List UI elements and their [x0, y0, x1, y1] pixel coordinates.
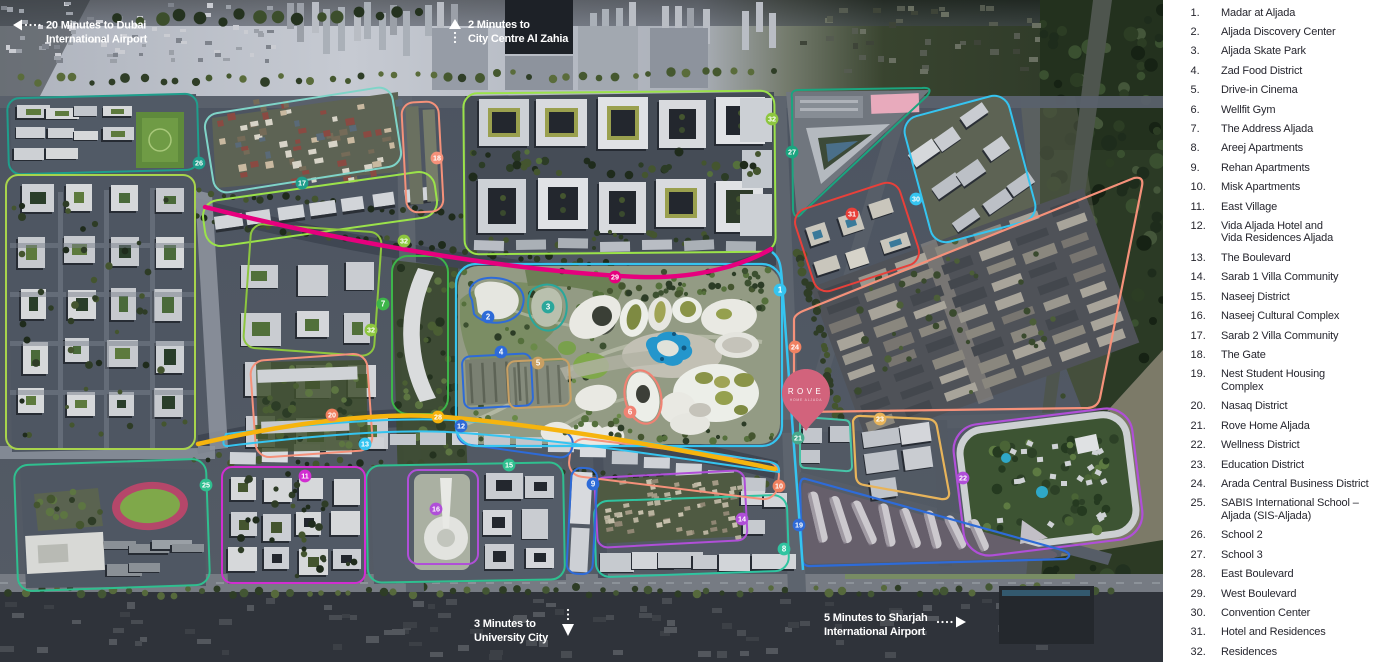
svg-text:3 Minutes to: 3 Minutes to — [474, 618, 536, 630]
svg-text:29: 29 — [611, 273, 619, 282]
svg-text:32: 32 — [367, 326, 375, 335]
svg-text:10: 10 — [775, 482, 783, 491]
svg-text:16: 16 — [432, 505, 440, 514]
svg-text:17: 17 — [298, 179, 306, 188]
svg-text:14: 14 — [738, 515, 746, 524]
svg-text:12: 12 — [457, 422, 465, 431]
svg-text:2 Minutes to: 2 Minutes to — [468, 19, 530, 31]
svg-text:19: 19 — [795, 521, 803, 530]
svg-text:HOME ALJADA: HOME ALJADA — [790, 398, 823, 402]
svg-text:22: 22 — [959, 474, 967, 483]
svg-text:25: 25 — [202, 481, 210, 490]
svg-text:30: 30 — [912, 195, 920, 204]
svg-text:2: 2 — [486, 313, 491, 322]
svg-text:6: 6 — [628, 408, 633, 417]
svg-text:11: 11 — [301, 472, 309, 481]
svg-text:4: 4 — [499, 348, 504, 357]
svg-text:20 Minutes to Dubai: 20 Minutes to Dubai — [46, 20, 146, 32]
svg-text:13: 13 — [361, 440, 369, 449]
svg-text:23: 23 — [876, 415, 884, 424]
svg-text:31: 31 — [848, 210, 856, 219]
svg-text:City Centre Al Zahia: City Centre Al Zahia — [468, 33, 569, 45]
svg-text:3: 3 — [546, 303, 551, 312]
svg-text:32: 32 — [768, 115, 776, 124]
svg-text:1: 1 — [778, 286, 783, 295]
svg-text:7: 7 — [381, 300, 385, 309]
svg-text:8: 8 — [782, 545, 787, 554]
svg-text:21: 21 — [794, 434, 802, 443]
svg-text:International Airport: International Airport — [46, 34, 148, 46]
svg-text:9: 9 — [591, 480, 596, 489]
svg-text:20: 20 — [328, 411, 336, 420]
svg-text:University City: University City — [474, 632, 549, 644]
svg-text:5: 5 — [536, 359, 541, 368]
svg-text:ROVE: ROVE — [788, 387, 824, 396]
svg-text:24: 24 — [791, 343, 799, 352]
svg-text:32: 32 — [400, 237, 408, 246]
svg-text:International Airport: International Airport — [824, 626, 926, 638]
svg-text:26: 26 — [195, 159, 203, 168]
svg-text:5 Minutes to Sharjah: 5 Minutes to Sharjah — [824, 612, 928, 624]
svg-text:18: 18 — [433, 154, 441, 163]
svg-text:27: 27 — [788, 148, 796, 157]
svg-text:15: 15 — [505, 461, 513, 470]
svg-text:28: 28 — [434, 413, 442, 422]
